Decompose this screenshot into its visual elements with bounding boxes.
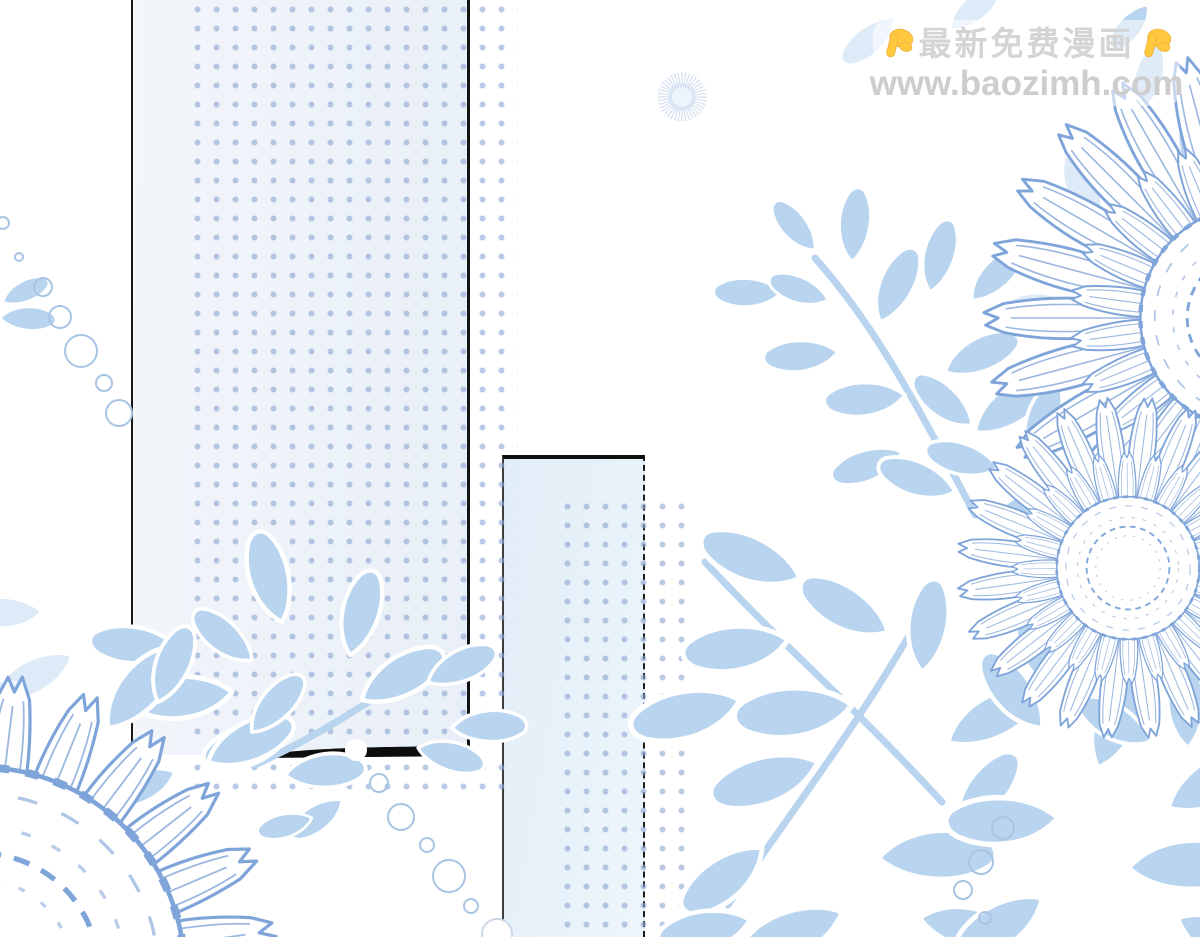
comic-page: 最新免费漫画 www.baozimh.com	[0, 0, 1200, 937]
halftone-dot-field-left-lower	[188, 758, 518, 791]
sunflower-top-right	[984, 50, 1200, 586]
watermark-badge: 最新免费漫画 www.baozimh.com	[873, 20, 1180, 106]
pointing-down-icon	[1138, 26, 1174, 62]
pointing-down-icon	[880, 26, 916, 62]
watermark-title: 最新免费漫画	[919, 27, 1135, 60]
watermark-url: www.baozimh.com	[870, 66, 1184, 101]
dandelion-puff	[658, 73, 706, 121]
bubble-chain-top-left	[0, 217, 132, 426]
watermark-title-row: 最新免费漫画	[880, 26, 1174, 62]
sunflower-middle-right	[956, 396, 1200, 739]
bubble-chain-bottom-right	[954, 817, 1014, 924]
halftone-dot-field-left	[188, 0, 518, 746]
halftone-dot-field-right	[558, 497, 692, 937]
bubble-chain-bottom-middle	[370, 774, 478, 913]
